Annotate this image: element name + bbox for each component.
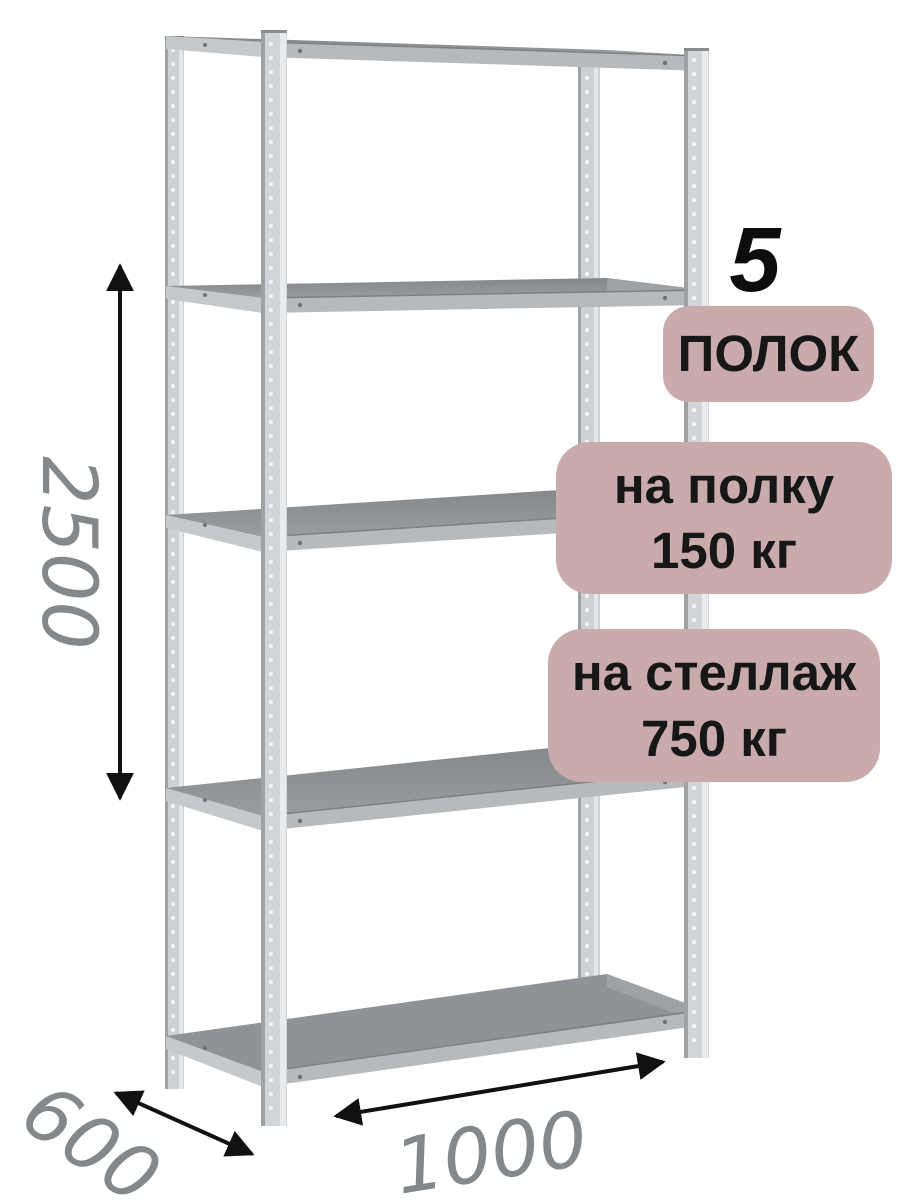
- shelf-load-line2: 150 кг: [651, 518, 797, 583]
- width-dimension-label: 1000: [389, 1093, 594, 1200]
- rack-load-line2: 750 кг: [641, 706, 787, 771]
- shelf-count-label: ПОЛОК: [678, 321, 860, 386]
- depth-dimension-label: 600: [6, 1065, 176, 1200]
- height-dimension-label: 2500: [25, 456, 114, 649]
- shelf-load-badge: на полку 150 кг: [556, 442, 892, 594]
- shelf-1: [166, 36, 704, 71]
- shelf-count-number: 5: [700, 214, 810, 306]
- shelf-2: [166, 278, 704, 313]
- shelf-load-line1: на полку: [614, 453, 834, 518]
- rear-left-post: [165, 36, 184, 1089]
- rack-load-badge: на стеллаж 750 кг: [548, 629, 880, 782]
- rack-load-line1: на стеллаж: [572, 640, 856, 705]
- product-image: 2500 600 1000 5 ПОЛОК на полку 150 кг на…: [0, 0, 900, 1200]
- shelving-rack-drawing: 2500 600 1000: [0, 0, 900, 1200]
- shelf-count-badge: ПОЛОК: [663, 306, 874, 402]
- front-left-post: [261, 30, 287, 1126]
